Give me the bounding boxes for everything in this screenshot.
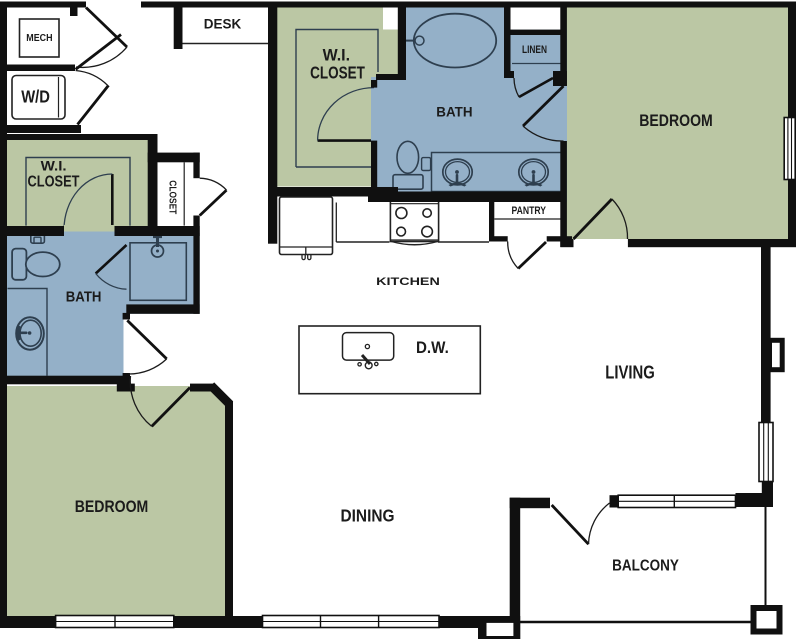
svg-text:W/D: W/D [21,87,50,107]
svg-text:CLOSET: CLOSET [310,62,365,82]
svg-text:BEDROOM: BEDROOM [639,112,713,130]
svg-text:LIVING: LIVING [605,361,655,382]
svg-text:BALCONY: BALCONY [612,557,679,574]
svg-text:DINING: DINING [341,506,395,526]
svg-text:CLOSET: CLOSET [28,174,80,191]
svg-text:CLOSET: CLOSET [167,180,178,214]
svg-text:DESK: DESK [204,16,242,32]
svg-text:BEDROOM: BEDROOM [75,498,149,516]
svg-text:D.W.: D.W. [416,338,449,357]
svg-text:KITCHEN: KITCHEN [376,276,440,288]
svg-text:W.I.: W.I. [41,159,67,174]
svg-text:BATH: BATH [436,103,472,119]
svg-text:LINEN: LINEN [522,44,547,56]
svg-text:MECH: MECH [26,33,52,44]
svg-text:PANTRY: PANTRY [512,205,547,217]
svg-text:BATH: BATH [66,289,102,306]
